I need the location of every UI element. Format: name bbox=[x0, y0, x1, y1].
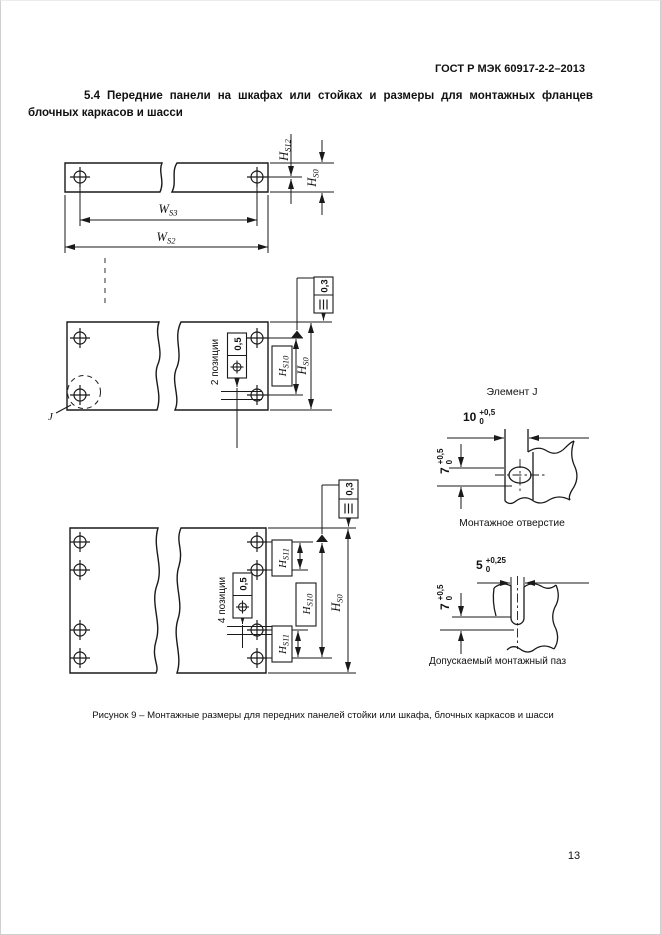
figure9-drawing: WS3 WS2 HS12 HS0 bbox=[0, 0, 661, 935]
two-hole-view: 0,5 0,3 2 позиции HS10 HS0 J bbox=[48, 277, 333, 448]
symmetry-tolerance-value: 0,3 bbox=[320, 279, 331, 292]
slot-detail-width-dim: 5 +0,250 bbox=[476, 556, 506, 574]
positions-label: 2 позиции bbox=[210, 339, 221, 385]
hole-detail-width-dim: 10 +0,50 bbox=[463, 408, 495, 426]
position-tolerance-value: 0,5 bbox=[239, 577, 250, 591]
dim-hs12-label: HS12 bbox=[277, 138, 293, 162]
hole-detail-caption: Монтажное отверстие bbox=[427, 518, 597, 529]
four-hole-view: 0,5 0,3 4 позиции HS11 HS10 HS11 HS0 bbox=[70, 480, 358, 673]
dim-ws3-label: WS3 bbox=[159, 202, 178, 218]
dim-ws2-label: WS2 bbox=[157, 230, 177, 246]
symmetry-tolerance-value: 0,3 bbox=[345, 482, 356, 495]
figure-caption: Рисунок 9 – Монтажные размеры для передн… bbox=[28, 710, 618, 721]
dim-hs0-label-4hole: HS0 bbox=[329, 593, 345, 612]
hole-detail-title: Элемент J bbox=[452, 386, 572, 398]
datum-triangle bbox=[316, 535, 328, 543]
slot-detail-caption: Допускаемый монтажный паз bbox=[410, 656, 585, 667]
positions-label: 4 позиции bbox=[217, 577, 228, 623]
slot-detail-offset-dim: 7 +0,50 bbox=[437, 576, 453, 610]
page-number: 13 bbox=[556, 850, 592, 862]
position-tolerance-value: 0,5 bbox=[233, 337, 244, 351]
strip-view: WS3 WS2 HS12 HS0 bbox=[65, 134, 334, 308]
hole-detail-offset-dim: 7 +0,50 bbox=[437, 440, 453, 474]
detail-j-marker: J bbox=[48, 411, 54, 423]
dim-hs0-label-2hole: HS0 bbox=[295, 356, 311, 375]
document-page: ГОСТ Р МЭК 60917-2-2–2013 5.4 Передние п… bbox=[0, 0, 661, 935]
datum-triangle bbox=[291, 331, 303, 339]
hole-detail-drawing bbox=[437, 429, 589, 509]
slot-detail-drawing bbox=[440, 576, 589, 654]
dim-hs0-label-strip: HS0 bbox=[305, 168, 321, 187]
